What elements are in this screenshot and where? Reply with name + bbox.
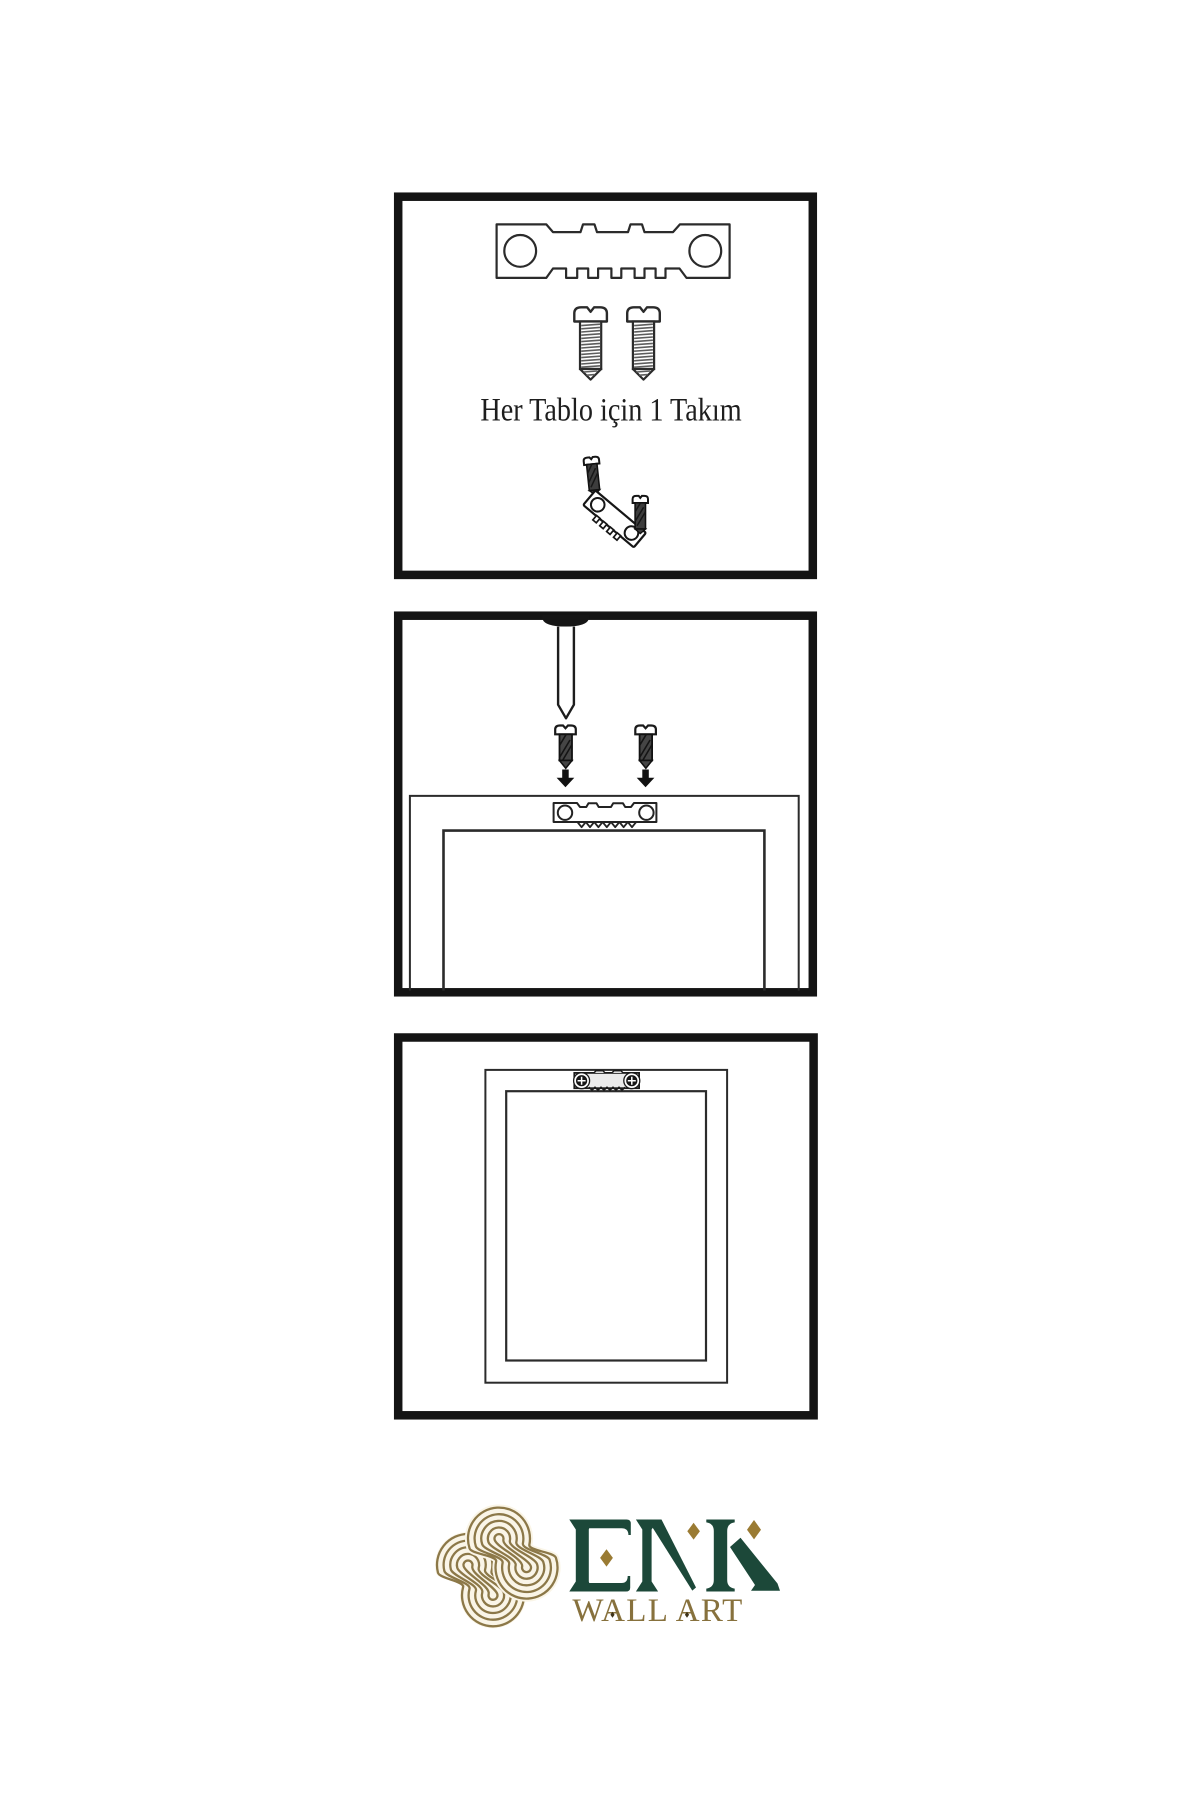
- svg-text:WALL ART: WALL ART: [572, 1593, 743, 1629]
- svg-text:Her Tablo için 1 Takım: Her Tablo için 1 Takım: [480, 391, 741, 428]
